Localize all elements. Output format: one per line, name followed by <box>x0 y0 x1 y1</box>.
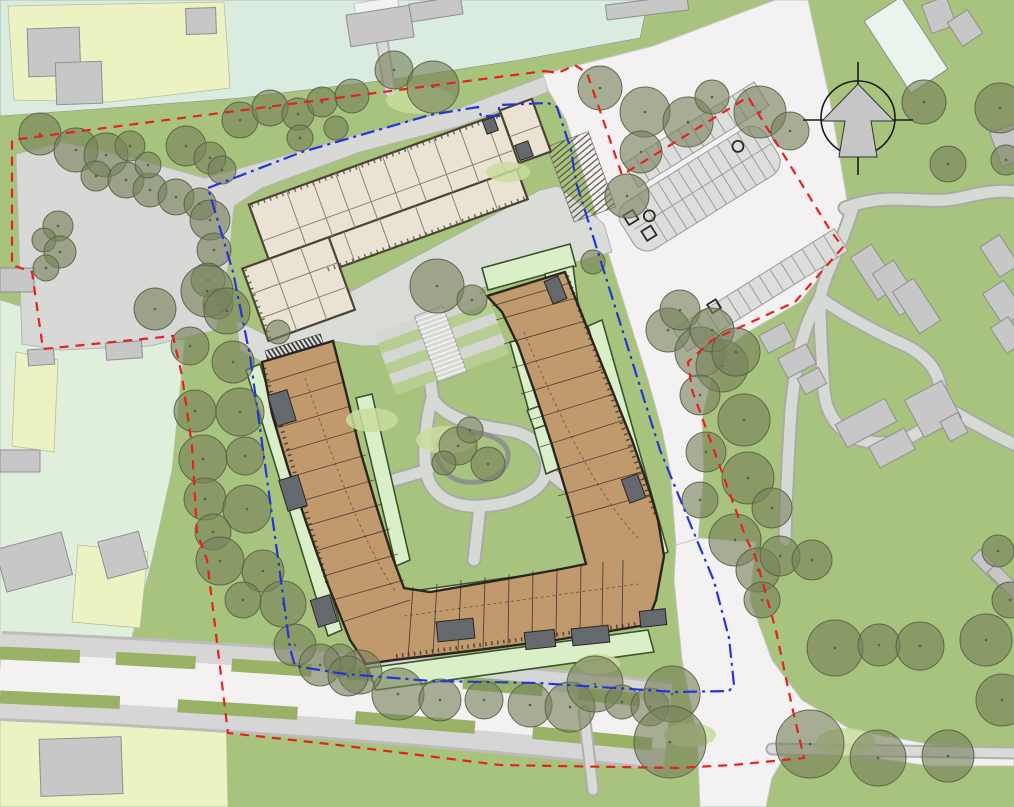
tree-trunk-dot <box>209 219 212 222</box>
tree-trunk-dot <box>221 169 224 172</box>
tree-trunk-dot <box>204 498 207 501</box>
tree-trunk-dot <box>483 699 486 702</box>
tree-trunk-dot <box>59 251 62 254</box>
tree-trunk-dot <box>213 249 216 252</box>
tree-trunk-dot <box>669 741 672 744</box>
tree-trunk-dot <box>212 531 215 534</box>
context-building <box>186 7 217 34</box>
tree-trunk-dot <box>125 179 128 182</box>
parcel-west-yellow-1 <box>12 352 58 452</box>
tree-trunk-dot <box>743 419 746 422</box>
tree-trunk-dot <box>239 411 242 414</box>
context-building <box>105 341 142 360</box>
tree-trunk-dot <box>923 101 926 104</box>
tree-trunk-dot <box>154 308 157 311</box>
tree-trunk-dot <box>487 463 490 466</box>
tree-trunk-dot <box>269 107 272 110</box>
tree-trunk-dot <box>878 644 881 647</box>
tree-trunk-dot <box>45 267 48 270</box>
tree-trunk-dot <box>185 145 188 148</box>
tree-trunk-dot <box>39 133 42 136</box>
tree-trunk-dot <box>439 699 442 702</box>
tree-trunk-dot <box>232 361 235 364</box>
tree-trunk-dot <box>1005 159 1008 162</box>
tree-trunk-dot <box>471 299 474 302</box>
tree-trunk-dot <box>711 329 714 332</box>
tree-trunk-dot <box>687 121 690 124</box>
tree-trunk-dot <box>297 113 300 116</box>
tree-trunk-dot <box>246 508 249 511</box>
tree-trunk-dot <box>239 119 242 122</box>
tree-trunk-dot <box>779 555 782 558</box>
tree-trunk-dot <box>789 130 792 133</box>
tree-trunk-dot <box>699 394 702 397</box>
tree-trunk-dot <box>671 693 674 696</box>
tree-trunk-dot <box>393 69 396 72</box>
tree-trunk-dot <box>457 445 460 448</box>
tree-trunk-dot <box>436 285 439 288</box>
tree-trunk-dot <box>761 599 764 602</box>
tree-trunk-dot <box>811 559 814 562</box>
tree-trunk-dot <box>705 451 708 454</box>
site-plan-stage <box>0 0 1014 807</box>
tree-trunk-dot <box>809 743 812 746</box>
tree-trunk-dot <box>771 507 774 510</box>
tree <box>324 116 348 140</box>
tree-trunk-dot <box>262 570 265 573</box>
tree-trunk-dot <box>294 644 297 647</box>
stair-core <box>639 609 667 628</box>
tree-trunk-dot <box>569 706 572 709</box>
tree-trunk-dot <box>999 107 1002 110</box>
tree-trunk-dot <box>599 87 602 90</box>
tree-trunk-dot <box>834 647 837 650</box>
tree-trunk-dot <box>75 149 78 152</box>
tree-trunk-dot <box>209 157 212 160</box>
tree-trunk-dot <box>734 539 737 542</box>
tree-trunk-dot <box>194 410 197 413</box>
tree-trunk-dot <box>699 499 702 502</box>
tree-trunk-dot <box>644 111 647 114</box>
tree <box>432 451 456 475</box>
tree-trunk-dot <box>621 701 624 704</box>
tree-trunk-dot <box>667 329 670 332</box>
tree-trunk-dot <box>469 429 472 432</box>
tree-trunk-dot <box>299 137 302 140</box>
tree-trunk-dot <box>206 290 209 293</box>
tree-trunk-dot <box>679 309 682 312</box>
tree-trunk-dot <box>1001 699 1004 702</box>
tree-trunk-dot <box>147 164 150 167</box>
tree-trunk-dot <box>244 455 247 458</box>
context-building <box>39 737 123 797</box>
context-building <box>55 61 102 105</box>
tree-trunk-dot <box>919 645 922 648</box>
tree-trunk-dot <box>319 664 322 667</box>
tree <box>266 320 290 344</box>
tree-trunk-dot <box>347 675 350 678</box>
tree-trunk-dot <box>149 189 152 192</box>
context-building <box>0 268 34 292</box>
tree-trunk-dot <box>529 704 532 707</box>
tree-trunk-dot <box>711 96 714 99</box>
stair-core <box>571 625 610 646</box>
tree-trunk-dot <box>397 693 400 696</box>
tree-trunk-dot <box>626 195 629 198</box>
tree-trunk-dot <box>219 560 222 563</box>
tree-trunk-dot <box>747 477 750 480</box>
tree-trunk-dot <box>226 310 229 313</box>
tree-trunk-dot <box>175 196 178 199</box>
tree-trunk-dot <box>105 154 108 157</box>
tree-trunk-dot <box>202 458 205 461</box>
tree-trunk-dot <box>57 225 60 228</box>
tree-trunk-dot <box>242 599 245 602</box>
tree-trunk-dot <box>129 145 132 148</box>
tree-trunk-dot <box>189 345 192 348</box>
understory-blob <box>346 408 398 432</box>
tree-trunk-dot <box>947 755 950 758</box>
tree-trunk-dot <box>947 163 950 166</box>
context-building <box>27 348 54 366</box>
tree-trunk-dot <box>735 351 738 354</box>
tree-trunk-dot <box>594 683 597 686</box>
site-plan-drawing <box>0 0 1014 807</box>
tree-trunk-dot <box>1009 599 1012 602</box>
context-building <box>0 450 40 472</box>
tree-trunk-dot <box>877 757 880 760</box>
stair-core <box>436 618 475 642</box>
tree-trunk-dot <box>95 175 98 178</box>
tree-trunk-dot <box>985 639 988 642</box>
tree-trunk-dot <box>640 151 643 154</box>
tree-trunk-dot <box>997 550 1000 553</box>
understory-blob <box>486 162 530 182</box>
stair-core <box>524 629 556 649</box>
